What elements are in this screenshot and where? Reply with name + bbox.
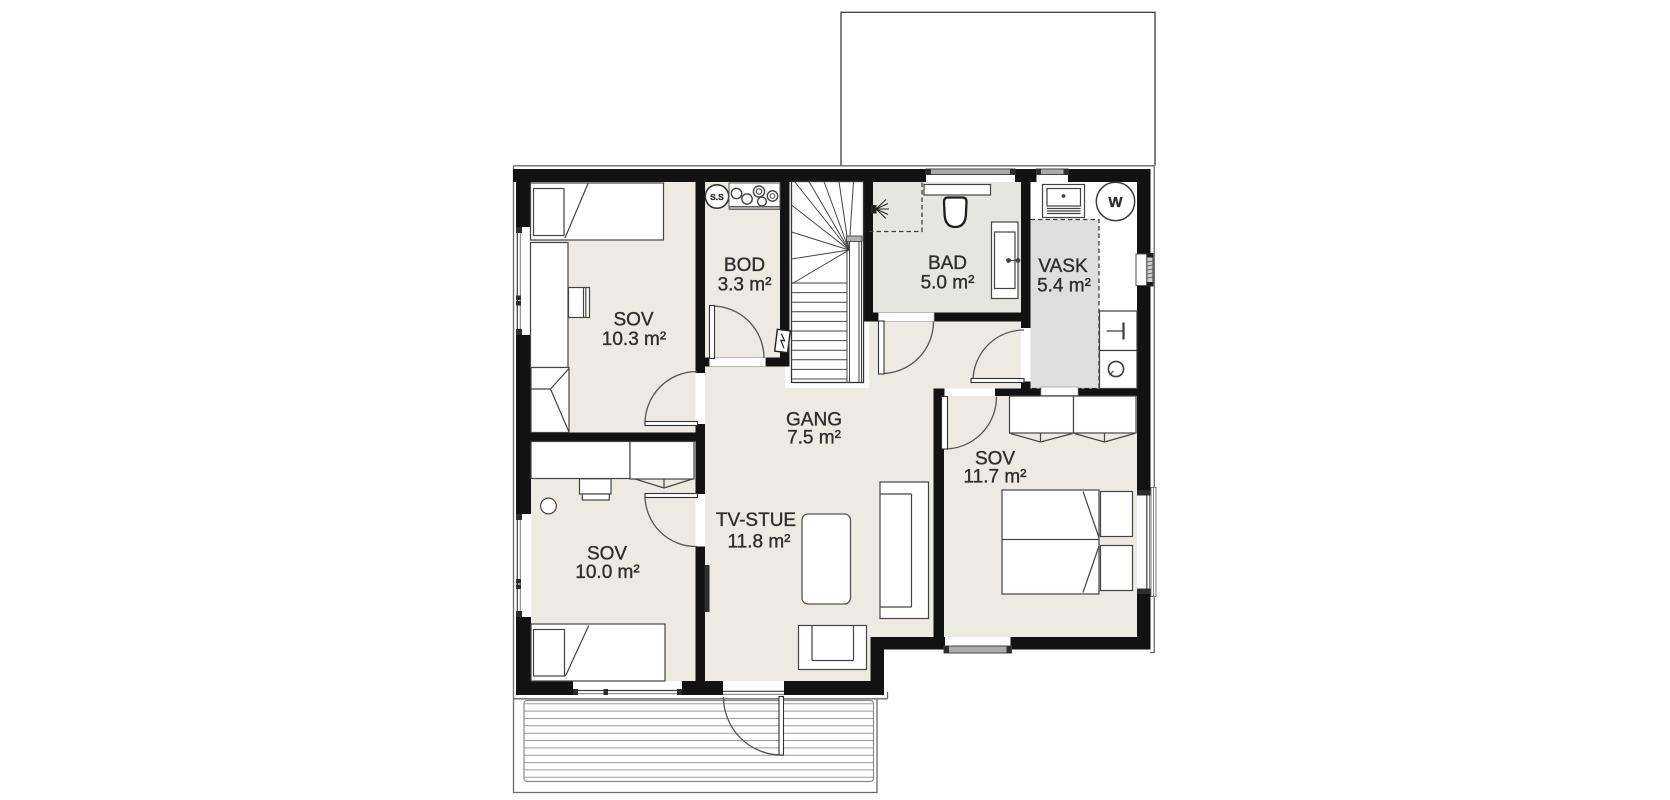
svg-text:10.3 m²: 10.3 m² <box>602 329 666 350</box>
svg-text:S.S: S.S <box>710 192 724 202</box>
svg-text:7.5 m²: 7.5 m² <box>787 428 841 449</box>
svg-text:11.7 m²: 11.7 m² <box>963 467 1026 488</box>
svg-text:11.8 m²: 11.8 m² <box>727 532 790 553</box>
svg-text:5.4 m²: 5.4 m² <box>1037 276 1091 297</box>
svg-text:TV-STUE: TV-STUE <box>716 510 796 531</box>
svg-text:BAD: BAD <box>928 253 967 274</box>
svg-text:5.0 m²: 5.0 m² <box>921 273 975 294</box>
svg-text:VASK: VASK <box>1038 256 1088 277</box>
svg-text:SOV: SOV <box>613 310 653 331</box>
svg-text:10.0 m²: 10.0 m² <box>575 562 639 583</box>
svg-text:W: W <box>1108 194 1123 211</box>
svg-text:3.3 m²: 3.3 m² <box>718 275 772 296</box>
svg-text:BOD: BOD <box>724 255 765 276</box>
